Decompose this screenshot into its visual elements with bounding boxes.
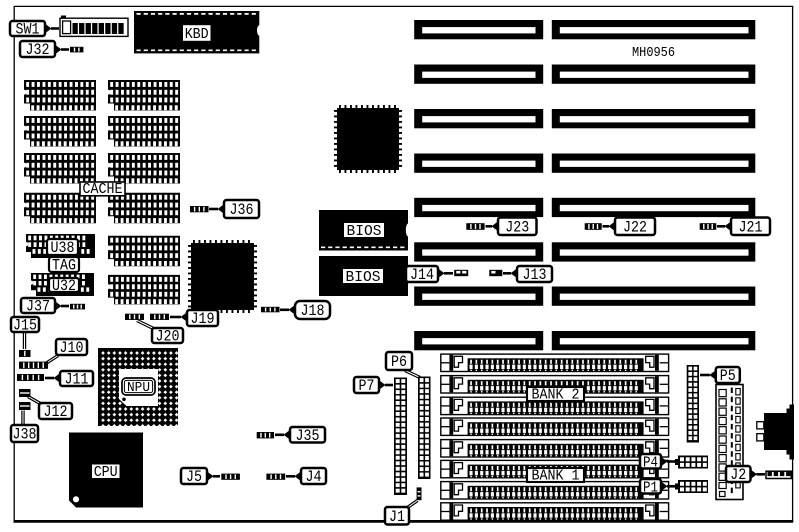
- svg-text:J20: J20: [156, 328, 180, 346]
- svg-text:J12: J12: [44, 403, 68, 421]
- svg-text:U38: U38: [51, 239, 75, 257]
- svg-text:J2: J2: [730, 466, 746, 484]
- svg-text:BANK 2: BANK 2: [532, 388, 580, 404]
- svg-text:J38: J38: [13, 426, 37, 444]
- svg-text:P6: P6: [391, 353, 407, 371]
- svg-text:J23: J23: [505, 218, 529, 236]
- svg-text:J4: J4: [306, 468, 322, 486]
- svg-text:U32: U32: [52, 277, 76, 295]
- svg-text:J5: J5: [186, 468, 202, 486]
- svg-text:BANK 1: BANK 1: [532, 469, 580, 485]
- svg-text:CACHE: CACHE: [83, 181, 123, 198]
- svg-text:P7: P7: [359, 377, 375, 395]
- svg-text:J10: J10: [60, 339, 84, 357]
- svg-text:BIOS: BIOS: [347, 223, 382, 240]
- svg-text:P1: P1: [643, 479, 658, 496]
- svg-text:BIOS: BIOS: [346, 269, 381, 286]
- svg-text:SW1: SW1: [16, 21, 40, 39]
- svg-text:J11: J11: [65, 371, 89, 389]
- svg-text:J35: J35: [296, 427, 320, 445]
- svg-text:CPU: CPU: [94, 464, 118, 481]
- svg-text:P5: P5: [720, 367, 736, 385]
- svg-text:TAG: TAG: [52, 257, 76, 275]
- svg-text:J36: J36: [230, 201, 254, 219]
- svg-text:MH0956: MH0956: [632, 46, 675, 61]
- svg-text:J13: J13: [523, 266, 547, 284]
- svg-text:J37: J37: [26, 298, 50, 316]
- svg-text:J1: J1: [389, 508, 405, 526]
- svg-text:J19: J19: [191, 310, 215, 328]
- svg-text:J21: J21: [739, 218, 763, 236]
- svg-text:J14: J14: [410, 266, 434, 284]
- svg-text:P4: P4: [643, 454, 658, 471]
- svg-text:J15: J15: [13, 317, 37, 335]
- svg-text:NPU: NPU: [127, 380, 150, 396]
- svg-text:J22: J22: [623, 218, 647, 236]
- svg-text:J32: J32: [26, 41, 50, 59]
- svg-text:KBD: KBD: [185, 26, 209, 43]
- svg-text:J18: J18: [301, 302, 325, 320]
